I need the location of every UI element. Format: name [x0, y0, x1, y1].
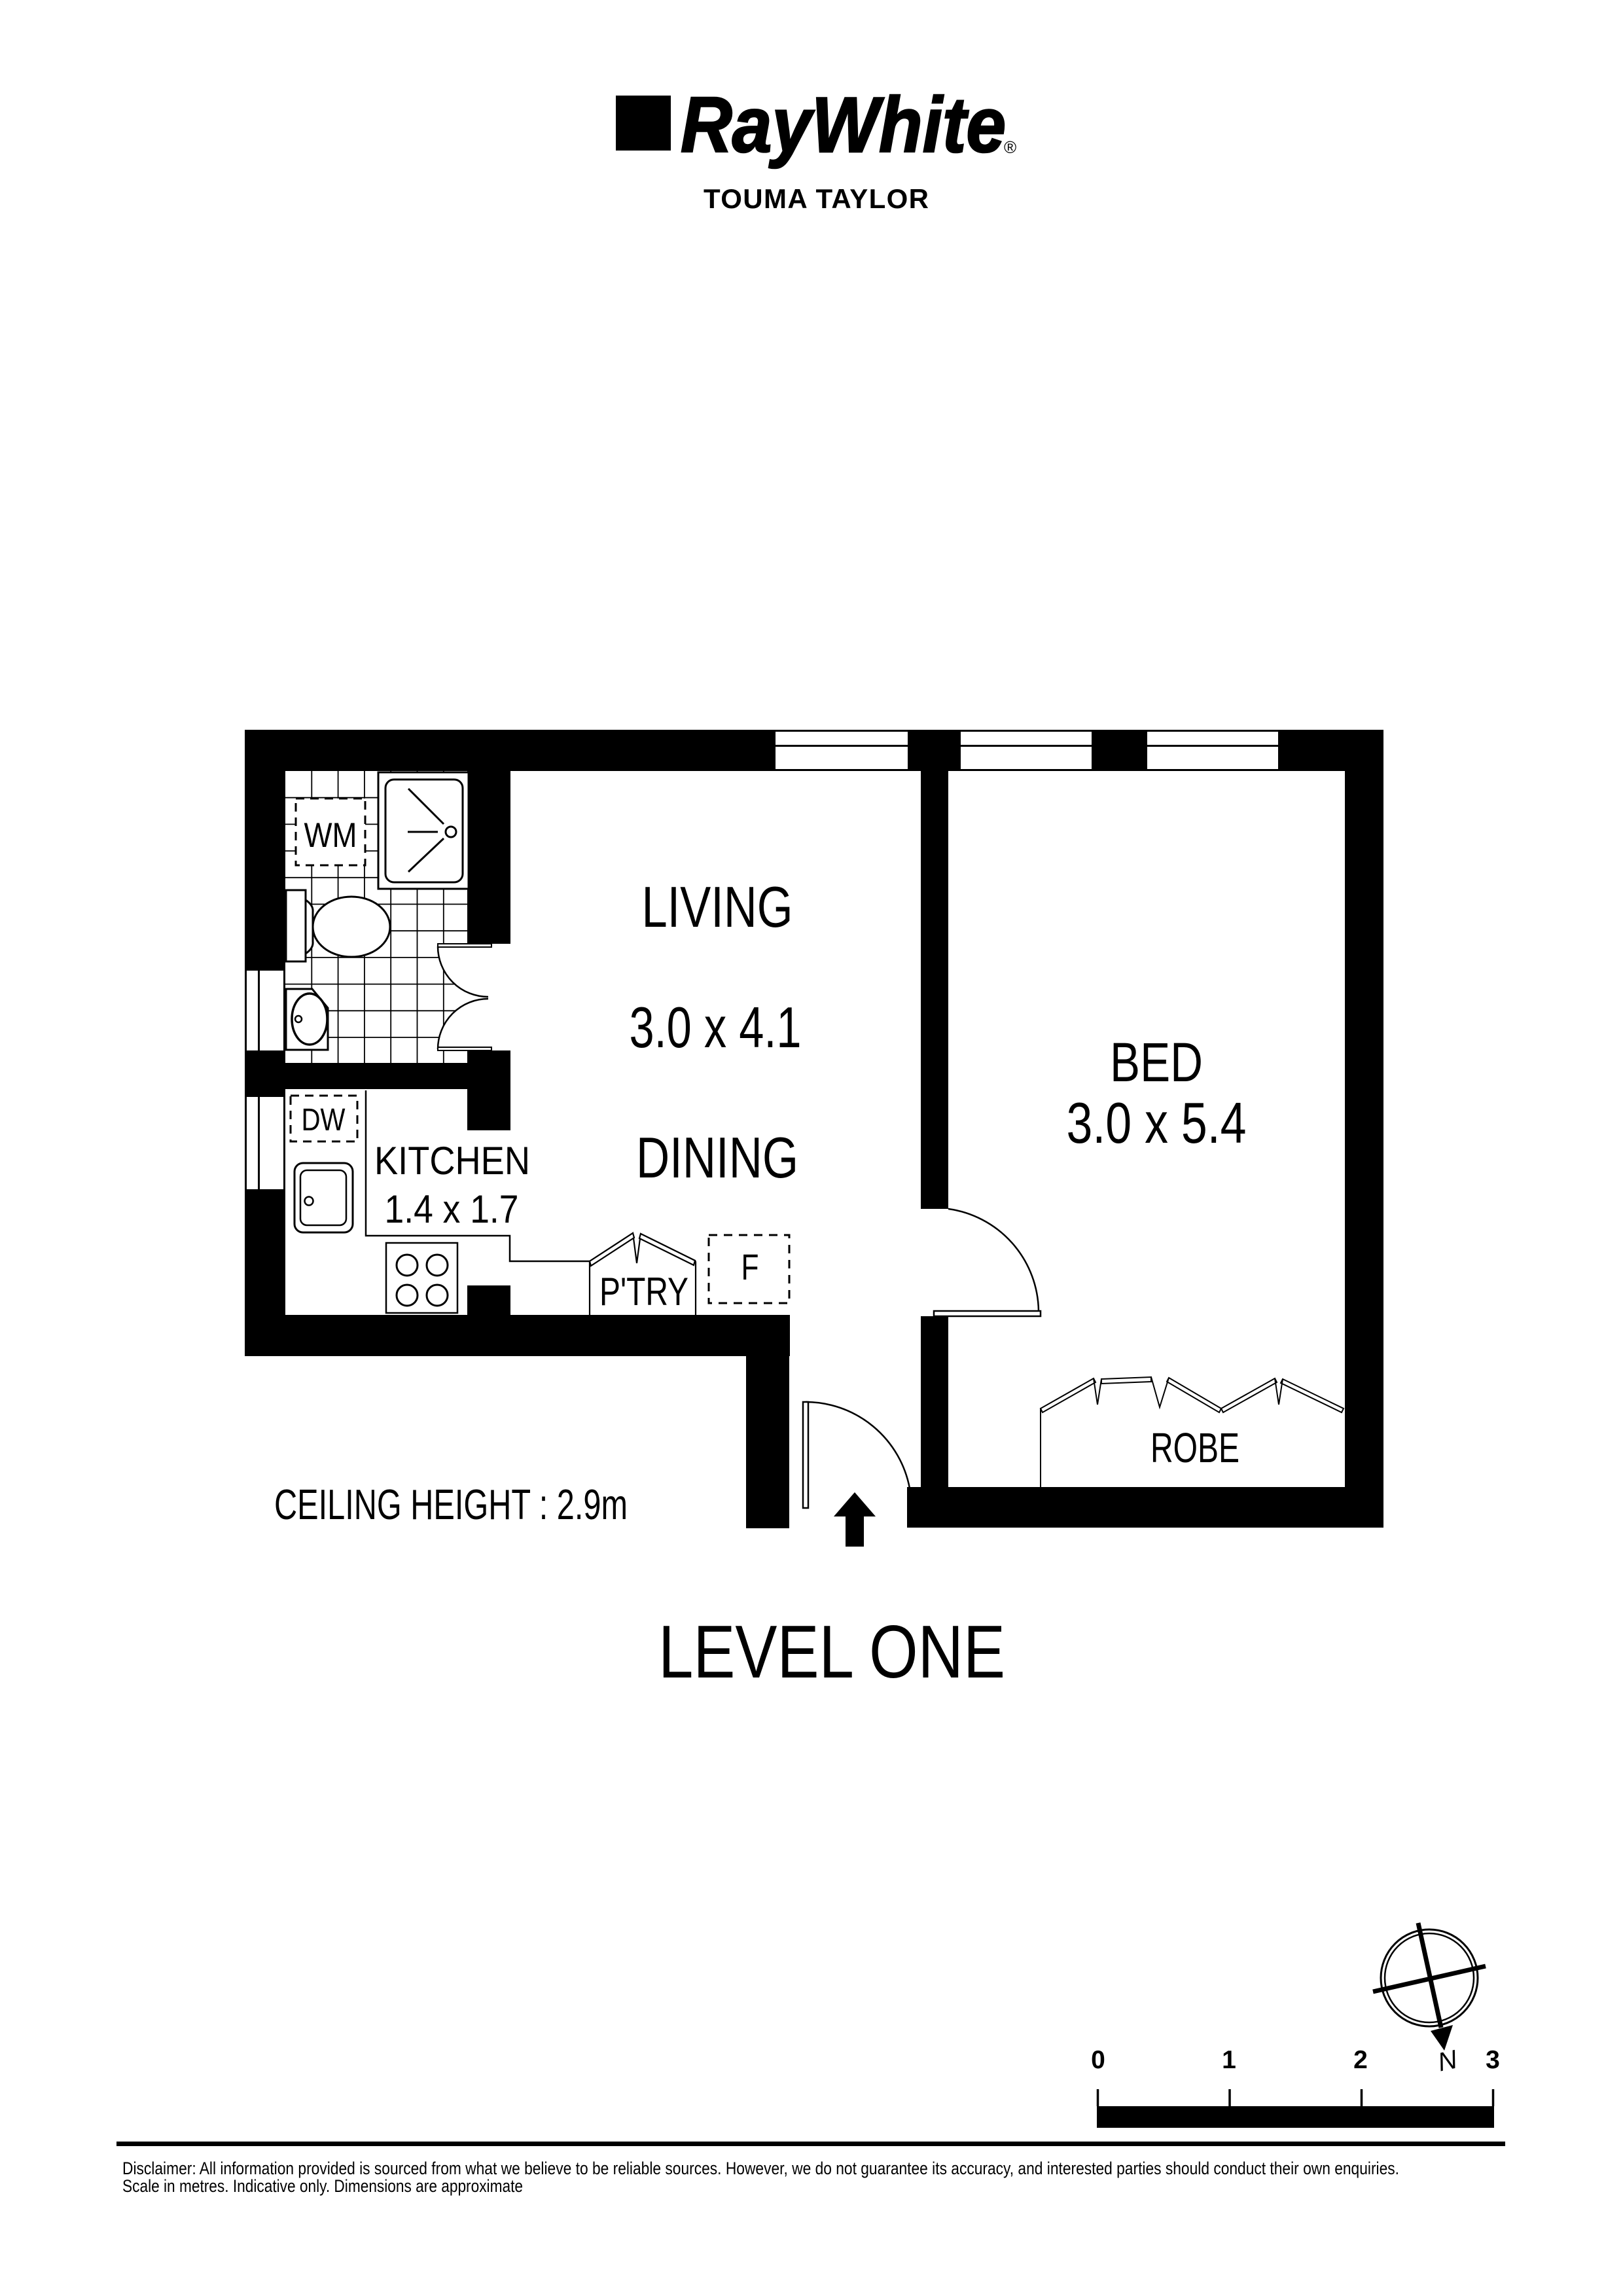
svg-text:1.4 x 1.7: 1.4 x 1.7 — [385, 1187, 519, 1231]
svg-text:Scale in metres. Indicative on: Scale in metres. Indicative only. Dimens… — [122, 2176, 523, 2196]
svg-text:®: ® — [1004, 137, 1016, 157]
svg-text:N: N — [1435, 2045, 1460, 2077]
svg-text:3: 3 — [1486, 2046, 1500, 2074]
svg-text:P'TRY: P'TRY — [599, 1270, 688, 1314]
svg-text:DW: DW — [302, 1103, 346, 1138]
svg-text:3.0 x 4.1: 3.0 x 4.1 — [630, 995, 802, 1060]
svg-text:LIVING: LIVING — [642, 874, 793, 939]
svg-text:DINING: DINING — [636, 1125, 798, 1190]
svg-text:ROBE: ROBE — [1150, 1424, 1240, 1471]
svg-text:F: F — [741, 1246, 759, 1287]
svg-text:3.0 x 5.4: 3.0 x 5.4 — [1067, 1090, 1247, 1155]
svg-text:BED: BED — [1110, 1031, 1203, 1093]
svg-text:Disclaimer: All information pr: Disclaimer: All information provided is … — [122, 2159, 1399, 2178]
svg-text:KITCHEN: KITCHEN — [374, 1139, 530, 1183]
svg-text:CEILING HEIGHT : 2.9m: CEILING HEIGHT : 2.9m — [274, 1480, 628, 1528]
svg-text:0: 0 — [1091, 2046, 1105, 2074]
svg-text:RayWhite: RayWhite — [681, 81, 1006, 169]
svg-text:1: 1 — [1222, 2046, 1236, 2074]
svg-text:TOUMA TAYLOR: TOUMA TAYLOR — [704, 183, 929, 214]
svg-text:WM: WM — [304, 816, 357, 855]
svg-text:LEVEL ONE: LEVEL ONE — [658, 1611, 1005, 1694]
svg-text:2: 2 — [1353, 2046, 1368, 2074]
